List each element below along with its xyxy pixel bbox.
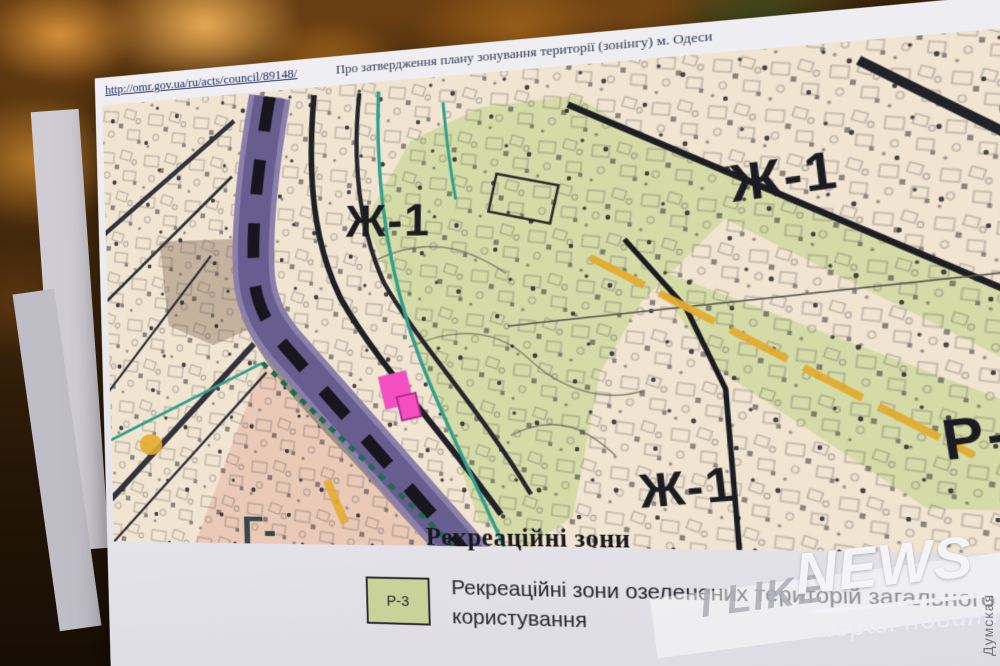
zone-label-zh1-center: Ж-1 bbox=[346, 197, 431, 244]
watermark-site-name: Думская bbox=[980, 556, 996, 656]
zoning-map-graphic bbox=[102, 28, 1000, 554]
legend-swatch-code: Р-3 bbox=[386, 592, 409, 609]
highlighted-parcel-magenta-2 bbox=[397, 393, 421, 421]
zoning-map: Ж-1 Ж-1 Ж-1 Р-3 Г- bbox=[102, 28, 1000, 554]
zone-label-zh1-top-right: Ж-1 bbox=[727, 142, 841, 210]
legend-swatch-r3: Р-3 bbox=[366, 576, 431, 625]
zone-label-zh1-bottom: Ж-1 bbox=[637, 459, 739, 515]
zone-label-r3: Р-3 bbox=[938, 400, 1000, 470]
